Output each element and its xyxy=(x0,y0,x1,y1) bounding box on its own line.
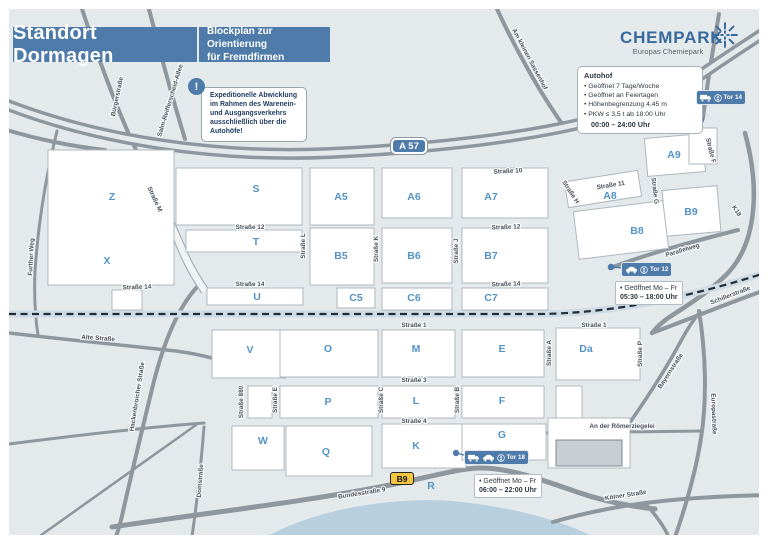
block-area xyxy=(112,290,142,310)
street-label: An der Römerziegelei xyxy=(589,423,655,430)
block-label-s: S xyxy=(252,183,259,195)
page-title: Standort Dormagen xyxy=(13,27,197,62)
block-c7 xyxy=(462,288,548,310)
pedestrian-icon xyxy=(497,454,505,462)
gate-label-tor14: Tor 14 xyxy=(724,94,742,101)
map-canvas: ZXSA5A6A7A8A9B9B8TB5B6B7UC5C6C7VOMEDaPLF… xyxy=(0,0,768,543)
brand-tagline: Europas Chemiepark xyxy=(622,47,714,56)
block-label-p: P xyxy=(324,396,331,408)
street-label: Europastraße xyxy=(709,393,717,435)
block-w xyxy=(232,426,284,470)
block-label-b9: B9 xyxy=(684,206,698,218)
car-icon xyxy=(482,454,495,462)
street-label: Straße K xyxy=(373,235,380,262)
gate-note-tor18: • Geöffnet Mo – Fr06:00 – 22:00 Uhr xyxy=(474,474,542,498)
a57-autobahn-badge: A 57 xyxy=(391,138,427,154)
facility-area xyxy=(556,440,622,466)
block-t xyxy=(186,230,302,252)
autohof-item: • Geöffnet 7 Tage/Woche xyxy=(584,82,696,91)
street-label: Straße 1 xyxy=(401,322,427,329)
gate-dot-tor12 xyxy=(608,264,614,270)
street-label: Straße 3 xyxy=(401,377,427,384)
road-hackenbroicher-strasse xyxy=(114,287,197,543)
gate-badge-tor12: Tor 12 xyxy=(621,262,672,277)
block-da xyxy=(556,328,640,380)
autohof-item: • PKW ≤ 3,5 t ab 18:00 Uhr xyxy=(584,110,696,119)
autohof-title: Autohof xyxy=(584,71,696,81)
block-area xyxy=(556,386,582,418)
gate-badge-tor14: Tor 14 xyxy=(696,90,746,105)
block-label-a5: A5 xyxy=(334,191,348,203)
block-label-b6: B6 xyxy=(407,250,421,262)
street-label: Straße B xyxy=(454,386,461,413)
page-subtitle: Blockplan zur Orientierung für Fremdfirm… xyxy=(199,27,330,62)
street-label: Straße E xyxy=(272,386,279,413)
block-area xyxy=(248,386,272,418)
block-label-f: F xyxy=(499,395,506,407)
street-label: Domstraße xyxy=(196,464,205,498)
truck-icon xyxy=(468,454,480,462)
block-label-w: W xyxy=(258,435,268,447)
block-k xyxy=(382,424,466,468)
gate-label-tor12: Tor 12 xyxy=(650,266,668,273)
street-label: Straße 14 xyxy=(122,283,151,291)
block-label-k: K xyxy=(412,440,420,452)
block-label-r: R xyxy=(427,480,435,492)
block-label-c7: C7 xyxy=(484,292,498,304)
truck-icon xyxy=(700,94,712,102)
subtitle-line-2: für Fremdfirmen xyxy=(207,51,330,64)
street-label: K18 xyxy=(730,204,742,218)
gate-dot-tor18 xyxy=(453,450,459,456)
street-label: Straße C xyxy=(378,386,385,413)
block-label-a7: A7 xyxy=(484,191,498,203)
car-icon xyxy=(625,266,638,274)
subtitle-line-1: Blockplan zur Orientierung xyxy=(207,25,330,51)
block-label-b7: B7 xyxy=(484,250,498,262)
block-label-g: G xyxy=(498,429,506,441)
gate-badge-tor18: Tor 18 xyxy=(464,450,529,465)
block-label-a8: A8 xyxy=(603,190,617,202)
autohof-item: • Höhenbegrenzung 4,45 m xyxy=(584,100,696,109)
gate-note-line: • Geöffnet Mo – Fr xyxy=(479,477,537,486)
street-label: Straße 12 xyxy=(236,224,265,231)
street-label: Am kleinen Sassenhof xyxy=(510,28,549,92)
block-label-b5: B5 xyxy=(334,250,348,262)
street-label: Straße L xyxy=(300,233,307,259)
brand-logo: CHEMPARK xyxy=(620,28,723,48)
block-b7 xyxy=(462,228,548,283)
block-label-m: M xyxy=(412,343,421,355)
street-label: Straße 14 xyxy=(491,280,520,288)
street-label: Straße 14 xyxy=(236,281,265,288)
gate-note-line: 05:30 – 18:00 Uhr xyxy=(620,293,678,302)
block-label-b8: B8 xyxy=(630,225,644,237)
block-label-e: E xyxy=(498,343,505,355)
block-label-z: Z xyxy=(109,191,116,203)
autohof-hours: 00:00 – 24:00 Uhr xyxy=(591,120,696,130)
gate-note-line: • Geöffnet Mo – Fr xyxy=(620,284,678,293)
block-z xyxy=(48,150,174,285)
block-label-a9: A9 xyxy=(667,149,681,161)
block-label-da: Da xyxy=(579,343,593,355)
block-a7 xyxy=(462,168,548,218)
block-label-x: X xyxy=(103,255,110,267)
pedestrian-icon xyxy=(714,94,722,102)
block-label-v: V xyxy=(246,344,253,356)
autohof-item: • Geöffnet an Feiertagen xyxy=(584,91,696,100)
block-s xyxy=(176,168,302,225)
b9-road-badge: B9 xyxy=(390,472,414,485)
block-label-q: Q xyxy=(322,446,330,458)
exclamation-icon: ! xyxy=(188,78,205,95)
notice-box: Expeditionelle Abwicklung im Rahmen des … xyxy=(201,87,307,142)
autohof-items: • Geöffnet 7 Tage/Woche• Geöffnet an Fei… xyxy=(584,82,696,119)
pedestrian-icon xyxy=(640,266,648,274)
block-b8 xyxy=(573,201,668,260)
street-label: Straße J xyxy=(453,238,460,264)
gate-note-line: 06:00 – 22:00 Uhr xyxy=(479,486,537,495)
block-label-t: T xyxy=(253,236,260,248)
street-label: Straße A xyxy=(546,340,553,366)
gate-label-tor18: Tor 18 xyxy=(507,454,525,461)
block-label-l: L xyxy=(413,395,420,407)
gate-note-tor12: • Geöffnet Mo – Fr05:30 – 18:00 Uhr xyxy=(615,281,683,305)
block-label-a6: A6 xyxy=(407,191,421,203)
street-label: Straße 1 xyxy=(581,322,607,329)
street-label: Straße G xyxy=(649,177,659,204)
block-label-o: O xyxy=(324,343,332,355)
block-label-c5: C5 xyxy=(349,292,363,304)
street-label: Straße P xyxy=(637,340,644,367)
autohof-info-box: Autohof • Geöffnet 7 Tage/Woche• Geöffne… xyxy=(577,66,703,134)
street-label: Straße 4 xyxy=(401,418,427,425)
street-label: Straße 880 xyxy=(238,385,245,418)
street-label: Straße 12 xyxy=(491,223,520,231)
sunburst-icon xyxy=(712,22,738,48)
street-label: Kölner Straße xyxy=(605,489,648,503)
block-label-u: U xyxy=(253,291,261,303)
page-title-text: Standort Dormagen xyxy=(13,22,197,68)
road-koelner-strasse xyxy=(553,495,768,522)
block-label-c6: C6 xyxy=(407,292,421,304)
